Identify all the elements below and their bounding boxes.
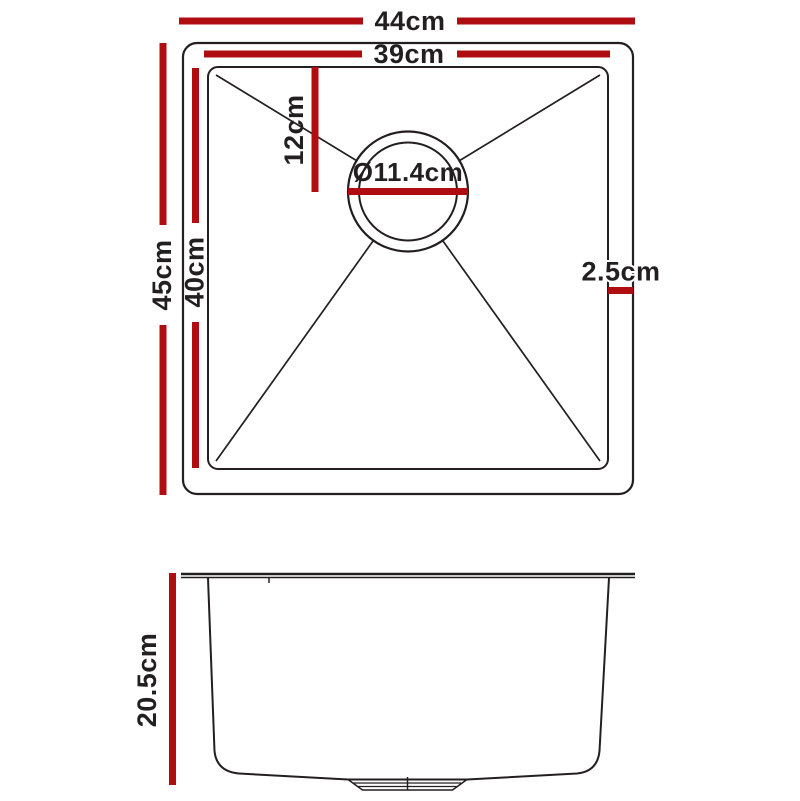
label-overall-depth: 45cm (147, 239, 177, 310)
dimension-bar-drain-diameter (348, 188, 468, 195)
dimension-bar-overall-width-left (179, 18, 363, 25)
dimension-bar-bowl-width-left (204, 51, 362, 58)
dimension-bar-overall-depth-top (160, 43, 167, 225)
diagram-canvas: 44cm 39cm 45cm 40cm 12cm Ø11.4cm 2.5cm (0, 0, 800, 801)
sink-top-view: 44cm 39cm 45cm 40cm 12cm Ø11.4cm 2.5cm (147, 6, 661, 495)
dimension-bar-bowl-width-right (457, 51, 610, 58)
label-bowl-height: 20.5cm (132, 633, 162, 728)
dimension-bar-drain-offset (312, 67, 319, 192)
label-overall-width: 44cm (374, 6, 445, 36)
dimension-bar-bowl-depth-bottom (192, 322, 199, 468)
dimension-bar-overall-width-right (457, 18, 635, 25)
dimension-bar-rim-width (608, 287, 633, 294)
label-drain-offset: 12cm (279, 94, 309, 165)
sink-dimension-diagram: 44cm 39cm 45cm 40cm 12cm Ø11.4cm 2.5cm (0, 0, 800, 801)
label-bowl-depth: 40cm (180, 236, 210, 307)
label-bowl-width: 39cm (373, 39, 444, 69)
dimension-bar-overall-depth-bottom (160, 325, 167, 495)
sink-side-view: 20.5cm (132, 573, 635, 790)
sink-outer-rim-outline (183, 43, 633, 494)
dimension-bar-bowl-height (169, 573, 176, 785)
label-drain-diameter: Ø11.4cm (353, 157, 463, 187)
bowl-profile-outline (208, 578, 609, 780)
sink-bowl-outline (208, 67, 608, 469)
dimension-bar-bowl-depth-top (192, 68, 199, 223)
label-rim-width: 2.5cm (581, 257, 660, 287)
